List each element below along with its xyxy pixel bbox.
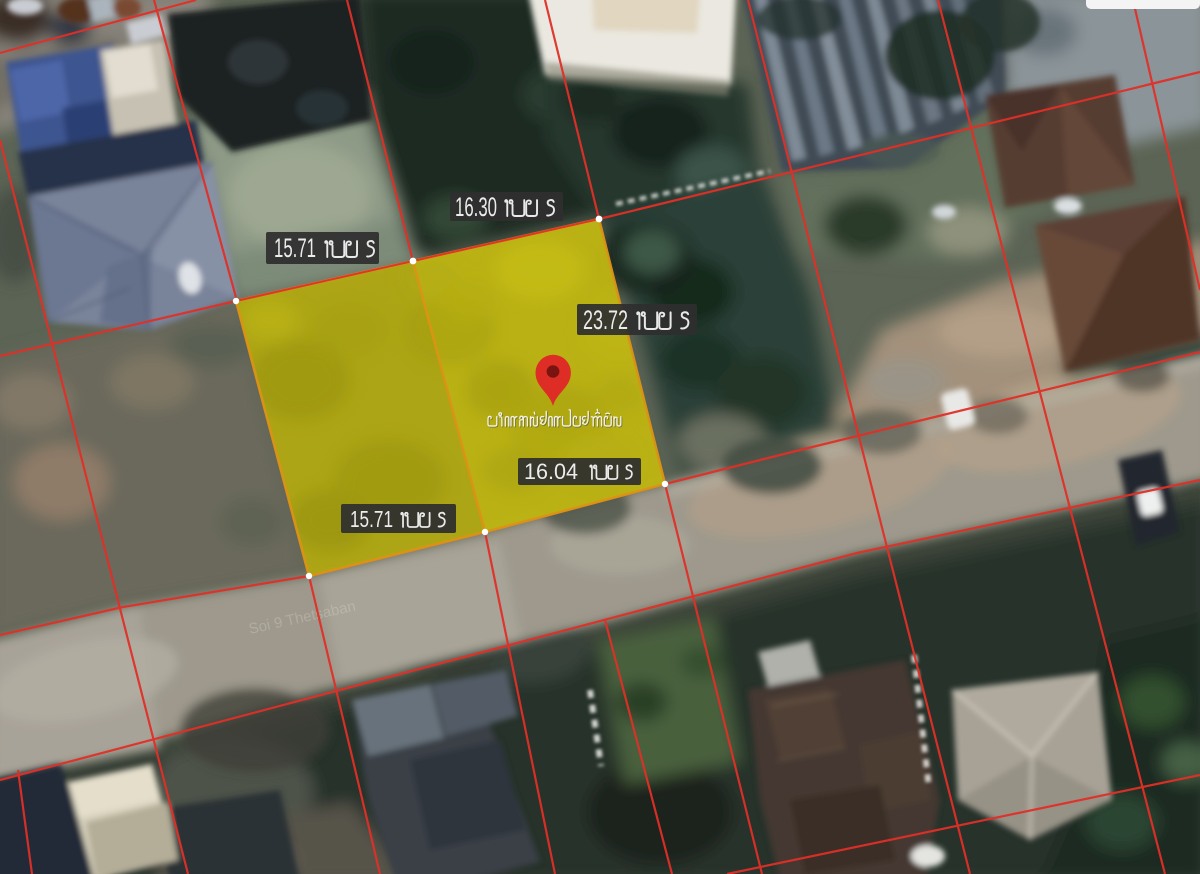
svg-text:23.72: 23.72 [583, 305, 628, 335]
svg-text:15.71: 15.71 [274, 233, 316, 263]
svg-text:16.04: 16.04 [524, 459, 578, 484]
svg-text:16.30: 16.30 [455, 192, 497, 222]
svg-text:15.71: 15.71 [350, 506, 393, 532]
